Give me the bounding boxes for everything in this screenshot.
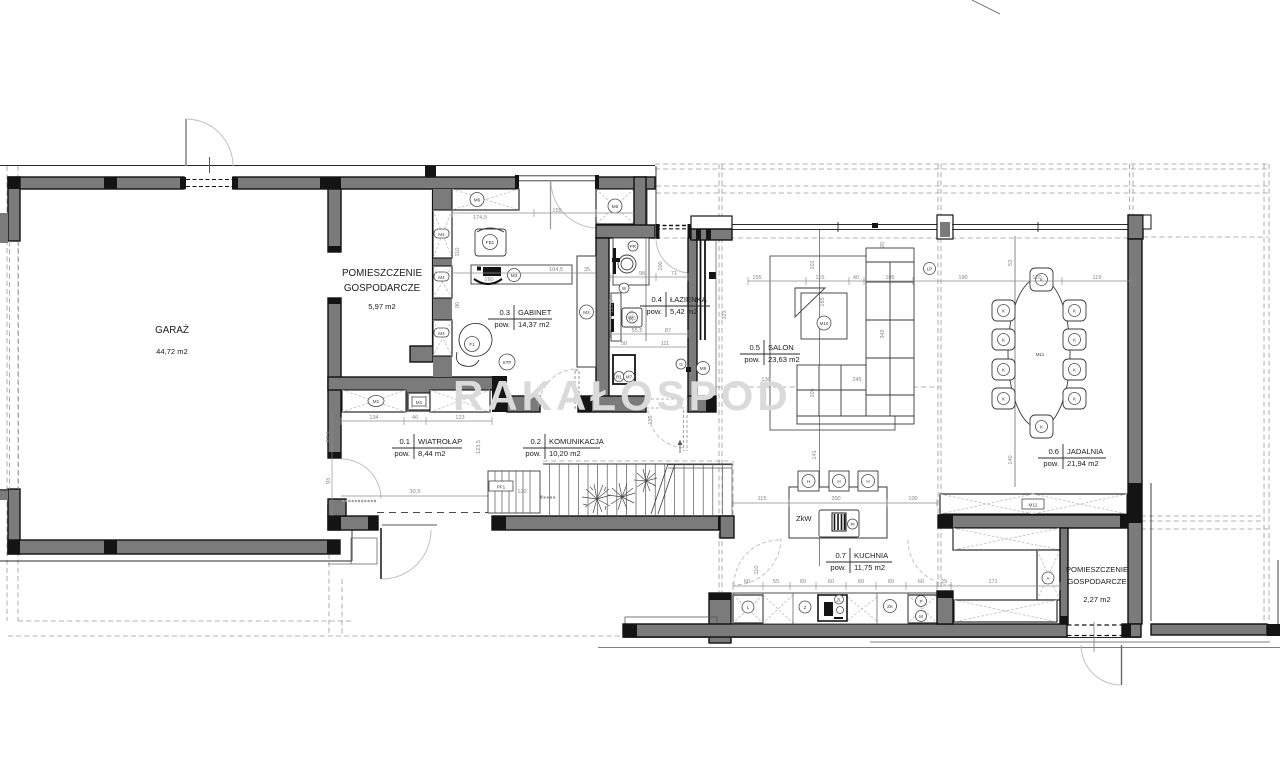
svg-text:190: 190	[958, 275, 967, 281]
svg-text:60: 60	[918, 579, 924, 585]
svg-text:STP: STP	[503, 360, 512, 365]
svg-text:165: 165	[820, 297, 826, 306]
svg-text:71: 71	[671, 271, 677, 277]
svg-text:pow.: pow.	[1043, 459, 1059, 468]
svg-text:44,72 m2: 44,72 m2	[156, 347, 188, 356]
svg-text:0.2: 0.2	[530, 437, 541, 446]
svg-text:46: 46	[412, 415, 418, 421]
svg-text:KUCHNIA: KUCHNIA	[854, 551, 889, 560]
svg-text:53: 53	[1008, 260, 1014, 266]
svg-text:20: 20	[880, 242, 886, 248]
svg-text:60: 60	[800, 579, 806, 585]
svg-text:JADALNIA: JADALNIA	[1067, 447, 1104, 456]
svg-text:F1: F1	[469, 342, 475, 347]
svg-text:0.3: 0.3	[499, 308, 510, 317]
svg-text:200: 200	[831, 496, 840, 502]
svg-text:POMIESZCZENIE: POMIESZCZENIE	[342, 268, 422, 279]
svg-text:101: 101	[810, 260, 816, 269]
svg-text:ŁAZIENKA: ŁAZIENKA	[670, 295, 708, 304]
svg-text:H: H	[807, 479, 810, 484]
svg-text:30,5: 30,5	[410, 489, 421, 495]
svg-text:Pi: Pi	[850, 522, 854, 527]
svg-text:55: 55	[773, 579, 779, 585]
svg-text:G: G	[679, 362, 683, 367]
svg-text:60: 60	[888, 579, 894, 585]
svg-text:140: 140	[1008, 455, 1014, 464]
svg-text:ZkW: ZkW	[796, 514, 812, 523]
svg-text:87,5: 87,5	[326, 432, 332, 443]
svg-text:pow.: pow.	[646, 307, 662, 316]
svg-text:pow.: pow.	[394, 449, 410, 458]
svg-text:123,5: 123,5	[476, 440, 482, 454]
svg-text:M10: M10	[820, 321, 829, 326]
svg-text:pow.: pow.	[494, 320, 510, 329]
svg-text:GARAŻ: GARAŻ	[155, 325, 189, 336]
svg-text:KOMUNIKACJA: KOMUNIKACJA	[549, 437, 605, 446]
svg-text:POMIESZCZENIE: POMIESZCZENIE	[1066, 565, 1128, 574]
svg-text:M9: M9	[700, 366, 707, 371]
svg-text:245: 245	[852, 377, 861, 383]
svg-text:M4: M4	[438, 331, 445, 336]
svg-text:pow.: pow.	[744, 355, 760, 364]
svg-text:M1: M1	[373, 399, 380, 404]
svg-text:0.6: 0.6	[1048, 447, 1059, 456]
svg-text:0.4: 0.4	[651, 295, 662, 304]
svg-text:60: 60	[858, 579, 864, 585]
svg-text:155: 155	[752, 275, 761, 281]
svg-text:FB1: FB1	[486, 240, 495, 245]
svg-text:90: 90	[455, 302, 461, 308]
svg-text:pow.: pow.	[525, 449, 541, 458]
svg-text:ZL: ZL	[836, 598, 842, 603]
svg-text:P: P	[919, 599, 922, 604]
svg-text:GOSPODARCZE: GOSPODARCZE	[344, 283, 421, 294]
svg-text:134: 134	[369, 415, 378, 421]
svg-text:M4: M4	[438, 232, 445, 237]
svg-text:pow.: pow.	[830, 563, 846, 572]
svg-text:93: 93	[326, 478, 332, 484]
svg-text:W: W	[622, 286, 627, 291]
svg-text:0.7: 0.7	[835, 551, 846, 560]
svg-text:115: 115	[816, 275, 825, 281]
svg-text:50: 50	[621, 341, 627, 347]
svg-text:GOSPODARCZE: GOSPODARCZE	[1067, 577, 1126, 586]
svg-text:M6: M6	[474, 198, 481, 203]
svg-text:29: 29	[941, 579, 947, 585]
svg-text:2,27 m2: 2,27 m2	[1083, 595, 1110, 604]
svg-text:120: 120	[517, 489, 526, 495]
svg-text:60: 60	[744, 579, 750, 585]
svg-text:M12: M12	[1029, 503, 1038, 508]
svg-text:174,5: 174,5	[473, 215, 487, 221]
svg-text:PR: PR	[630, 244, 637, 249]
svg-text:32,5: 32,5	[629, 311, 635, 322]
svg-text:21,94 m2: 21,94 m2	[1067, 459, 1099, 468]
svg-text:PF1: PF1	[497, 485, 506, 490]
svg-text:5,42 m2: 5,42 m2	[670, 307, 697, 316]
svg-text:0.1: 0.1	[399, 437, 410, 446]
svg-text:110: 110	[754, 566, 760, 575]
svg-text:10,20 m2: 10,20 m2	[549, 449, 581, 458]
svg-text:RAKAŁOSPOD: RAKAŁOSPOD	[453, 372, 792, 419]
svg-text:0.5: 0.5	[749, 343, 760, 352]
svg-text:115: 115	[758, 496, 767, 502]
svg-text:M6: M6	[612, 204, 619, 209]
svg-text:WIATROŁAP: WIATROŁAP	[418, 437, 462, 446]
svg-text:M3: M3	[511, 273, 518, 278]
svg-text:105: 105	[885, 275, 894, 281]
svg-text:M2: M2	[583, 310, 590, 315]
svg-text:M1: M1	[416, 400, 423, 405]
svg-text:171: 171	[988, 579, 997, 585]
svg-text:120: 120	[1032, 275, 1041, 281]
svg-text:5,97 m2: 5,97 m2	[368, 302, 395, 311]
svg-text:87: 87	[665, 328, 671, 334]
svg-text:LP: LP	[927, 267, 933, 272]
svg-text:323: 323	[722, 310, 728, 319]
svg-text:35: 35	[584, 267, 590, 273]
svg-text:23,63 m2: 23,63 m2	[768, 355, 800, 364]
svg-text:M11: M11	[1036, 352, 1045, 357]
svg-text:160: 160	[484, 277, 493, 283]
svg-text:H: H	[837, 479, 840, 484]
svg-text:105: 105	[810, 388, 816, 397]
svg-text:119: 119	[1093, 275, 1102, 281]
svg-text:Z: Z	[804, 605, 807, 610]
svg-text:104,5: 104,5	[549, 267, 563, 273]
svg-text:98: 98	[639, 271, 645, 277]
svg-text:ZK: ZK	[887, 604, 894, 609]
svg-text:14,37 m2: 14,37 m2	[518, 320, 550, 329]
svg-text:M: M	[919, 614, 923, 619]
svg-text:55,5: 55,5	[632, 328, 643, 334]
svg-text:8,44 m2: 8,44 m2	[418, 449, 445, 458]
svg-text:345: 345	[880, 329, 886, 338]
svg-text:SALON: SALON	[768, 343, 794, 352]
svg-text:GABINET: GABINET	[518, 308, 552, 317]
svg-text:H: H	[866, 479, 869, 484]
svg-text:111: 111	[661, 341, 670, 347]
svg-text:11,75 m2: 11,75 m2	[854, 563, 885, 572]
svg-text:M4: M4	[438, 275, 445, 280]
svg-text:40: 40	[853, 275, 859, 281]
svg-text:155: 155	[552, 208, 561, 214]
svg-text:141: 141	[812, 450, 818, 459]
svg-text:123,5: 123,5	[609, 299, 615, 313]
svg-text:100: 100	[908, 496, 917, 502]
svg-text:60: 60	[828, 579, 834, 585]
svg-text:L: L	[747, 605, 750, 610]
svg-text:110: 110	[455, 248, 461, 257]
svg-text:100: 100	[658, 261, 664, 270]
